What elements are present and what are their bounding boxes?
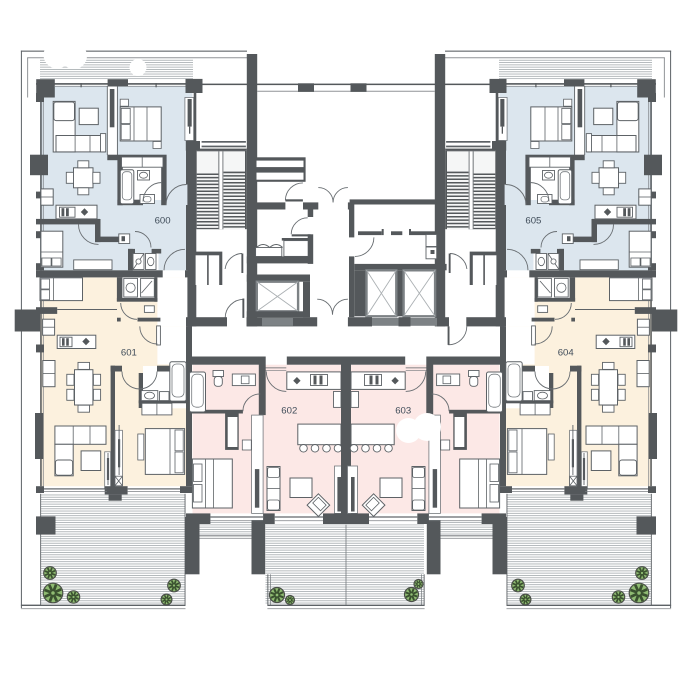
svg-text:600: 600 (155, 215, 171, 226)
svg-text:604: 604 (558, 347, 575, 358)
svg-text:602: 602 (281, 406, 297, 417)
svg-text:605: 605 (525, 215, 541, 226)
svg-text:601: 601 (121, 347, 137, 358)
svg-text:603: 603 (395, 406, 411, 417)
